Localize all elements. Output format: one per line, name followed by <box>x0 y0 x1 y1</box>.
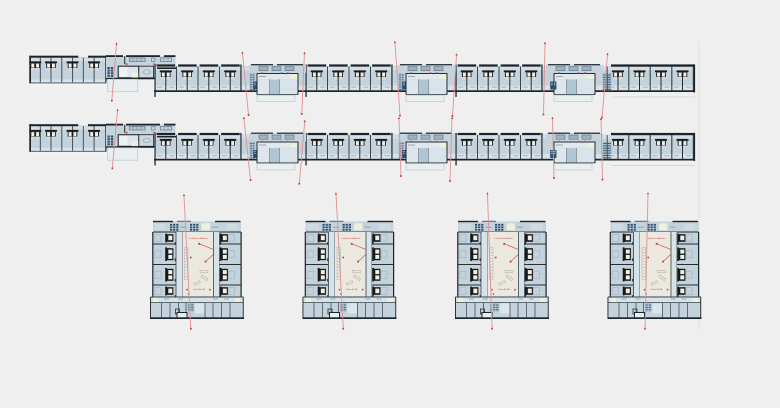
svg-text:Lärm 45 dB: Lärm 45 dB <box>193 288 205 291</box>
svg-text:Lärm 45 dB: Lärm 45 dB <box>651 288 663 291</box>
svg-text:Lichthof und Atrium: Lichthof und Atrium <box>189 237 208 240</box>
svg-text:Lichthof und Atrium: Lichthof und Atrium <box>494 237 513 240</box>
svg-text:Lärm 45 dB: Lärm 45 dB <box>346 288 358 291</box>
svg-text:Lichthof und Atrium: Lichthof und Atrium <box>342 237 361 240</box>
svg-text:Lichthof und Atrium: Lichthof und Atrium <box>647 237 666 240</box>
svg-text:Lärm 45 dB: Lärm 45 dB <box>498 288 510 291</box>
